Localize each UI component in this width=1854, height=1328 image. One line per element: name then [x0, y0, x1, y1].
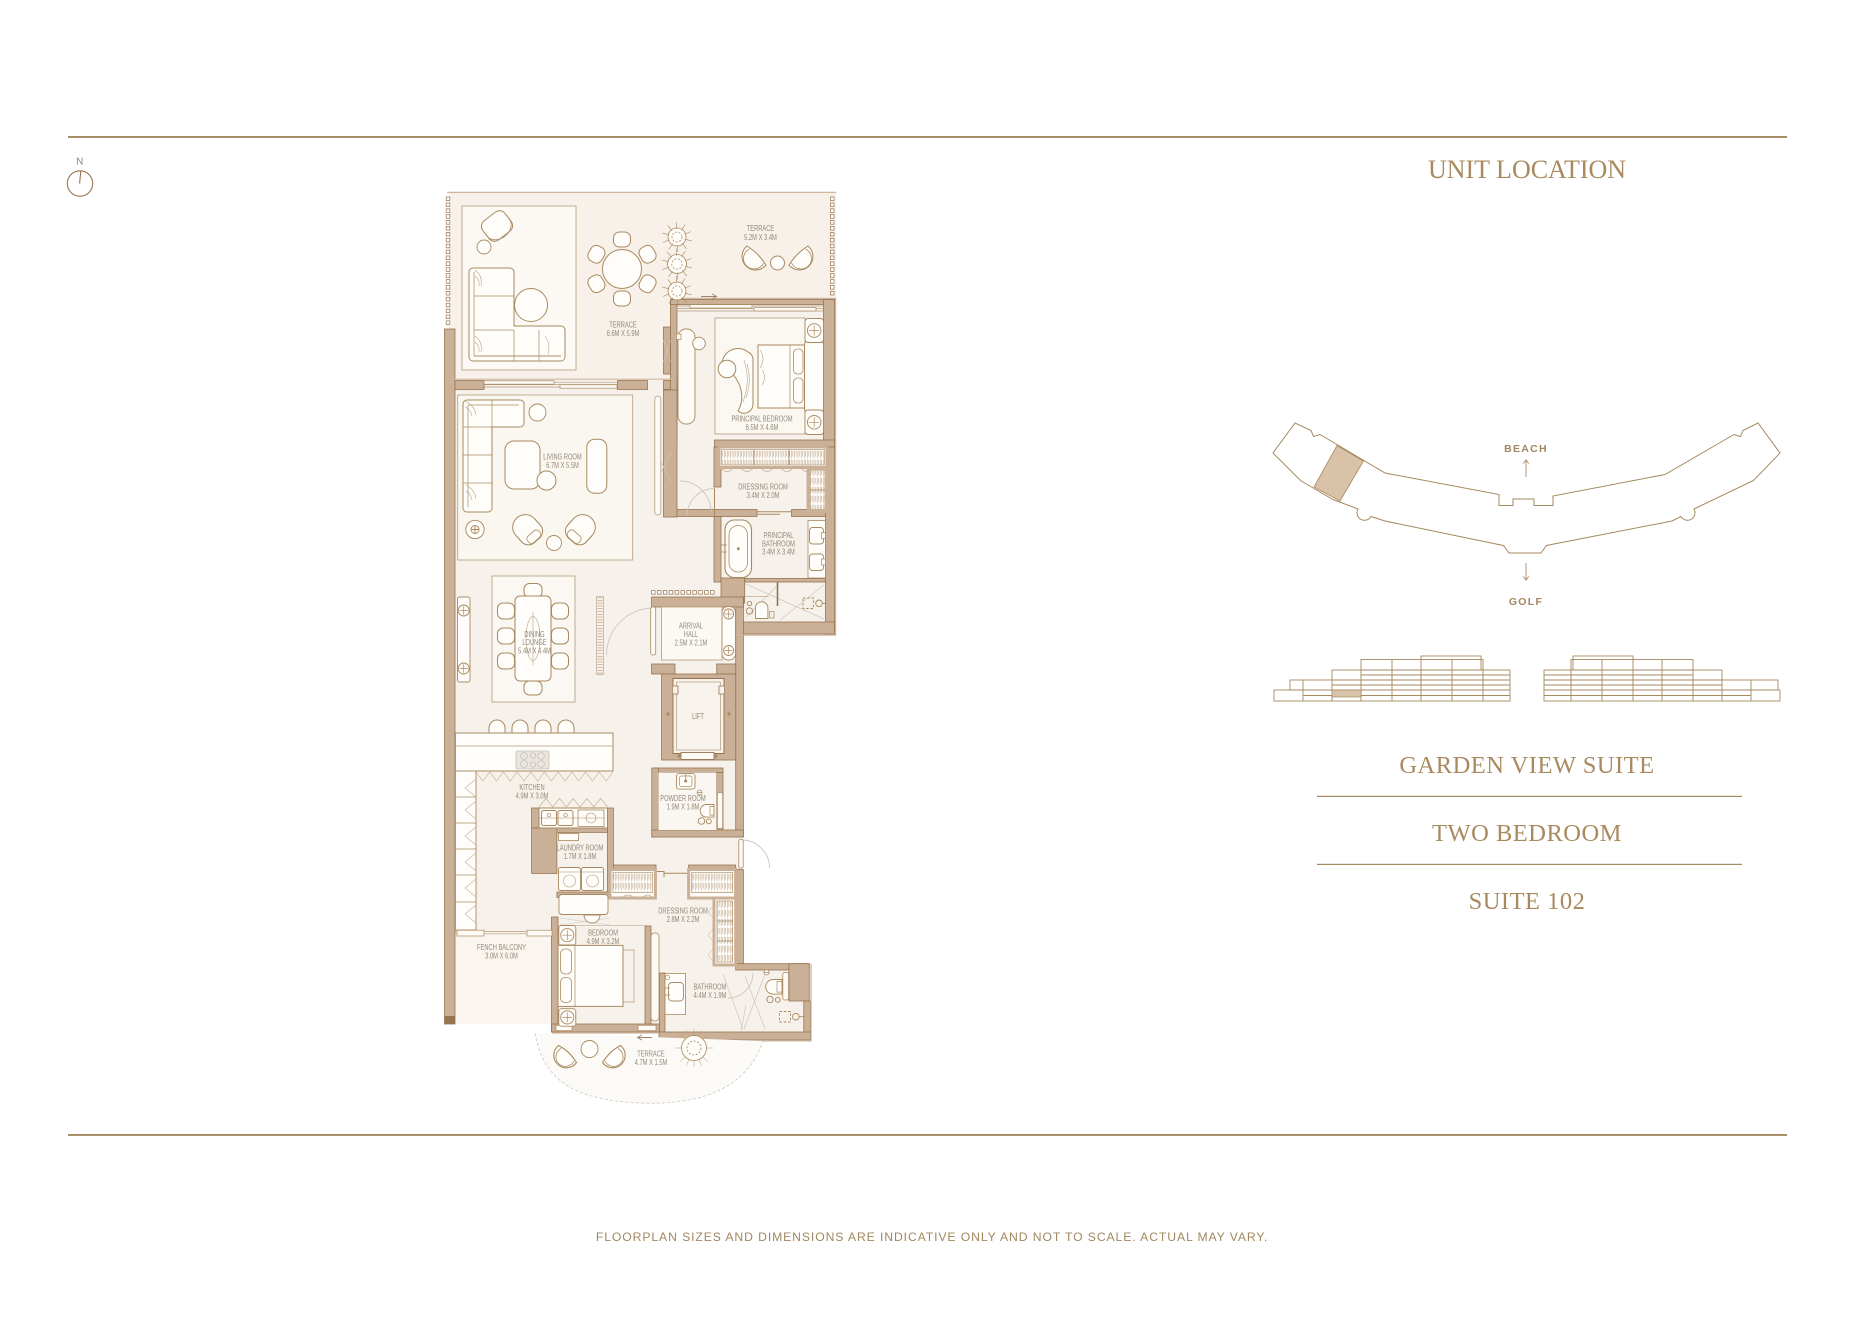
svg-text:LIFT: LIFT: [692, 712, 704, 721]
svg-text:2.5M X 2.1M: 2.5M X 2.1M: [675, 639, 708, 648]
svg-text:GARDEN VIEW SUITE: GARDEN VIEW SUITE: [1399, 752, 1654, 779]
svg-text:3.0M X 6.0M: 3.0M X 6.0M: [485, 952, 518, 961]
svg-text:4.4M X 1.9M: 4.4M X 1.9M: [694, 991, 727, 1000]
svg-text:1.9M X 1.8M: 1.9M X 1.8M: [667, 803, 700, 812]
svg-text:GOLF: GOLF: [1509, 596, 1543, 608]
svg-text:3.4M X 2.0M: 3.4M X 2.0M: [747, 491, 780, 500]
svg-text:2.8M X 2.2M: 2.8M X 2.2M: [667, 915, 700, 924]
svg-text:6.6M X 5.9M: 6.6M X 5.9M: [607, 329, 640, 338]
svg-text:4.9M X 3.0M: 4.9M X 3.0M: [516, 792, 549, 801]
svg-text:1.7M X 1.8M: 1.7M X 1.8M: [564, 852, 597, 861]
svg-text:TERRACE: TERRACE: [747, 224, 775, 233]
svg-text:4.7M X 1.5M: 4.7M X 1.5M: [635, 1058, 668, 1067]
svg-text:BEACH: BEACH: [1504, 443, 1548, 455]
svg-text:4.9M X 3.2M: 4.9M X 3.2M: [587, 937, 620, 946]
svg-text:5.4M X 4.4M: 5.4M X 4.4M: [518, 646, 551, 655]
svg-text:3.4M X 3.4M: 3.4M X 3.4M: [762, 548, 795, 557]
svg-text:N: N: [76, 157, 84, 168]
svg-text:UNIT LOCATION: UNIT LOCATION: [1428, 155, 1626, 184]
svg-text:TWO BEDROOM: TWO BEDROOM: [1432, 820, 1622, 847]
svg-text:FLOORPLAN SIZES AND DIMENSIONS: FLOORPLAN SIZES AND DIMENSIONS ARE INDIC…: [596, 1230, 1268, 1244]
svg-text:6.5M X 4.6M: 6.5M X 4.6M: [746, 423, 779, 432]
svg-text:SUITE 102: SUITE 102: [1469, 888, 1586, 915]
svg-text:5.2M X 3.4M: 5.2M X 3.4M: [744, 233, 777, 242]
svg-text:6.7M X 5.5M: 6.7M X 5.5M: [546, 461, 579, 470]
